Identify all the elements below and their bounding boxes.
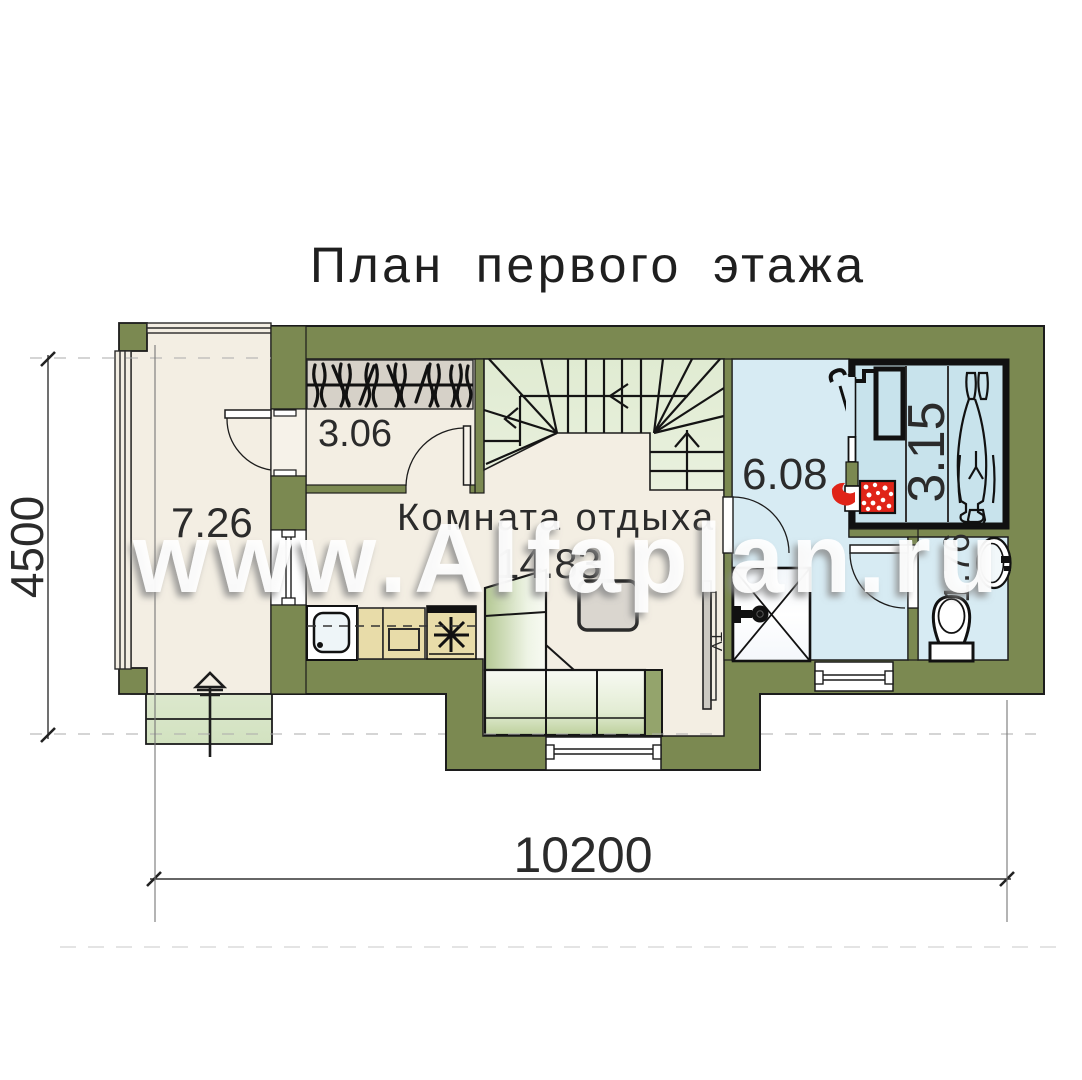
svg-text:3.15: 3.15 [898,401,956,502]
svg-text:План первого этажа: План первого этажа [310,237,867,293]
svg-text:TV: TV [708,632,725,651]
svg-text:www.Alfaplan.ru: www.Alfaplan.ru [132,503,1005,613]
svg-text:4500: 4500 [1,496,53,598]
svg-text:6.08: 6.08 [742,450,828,499]
svg-text:10200: 10200 [513,827,652,883]
svg-text:3.06: 3.06 [318,413,392,455]
